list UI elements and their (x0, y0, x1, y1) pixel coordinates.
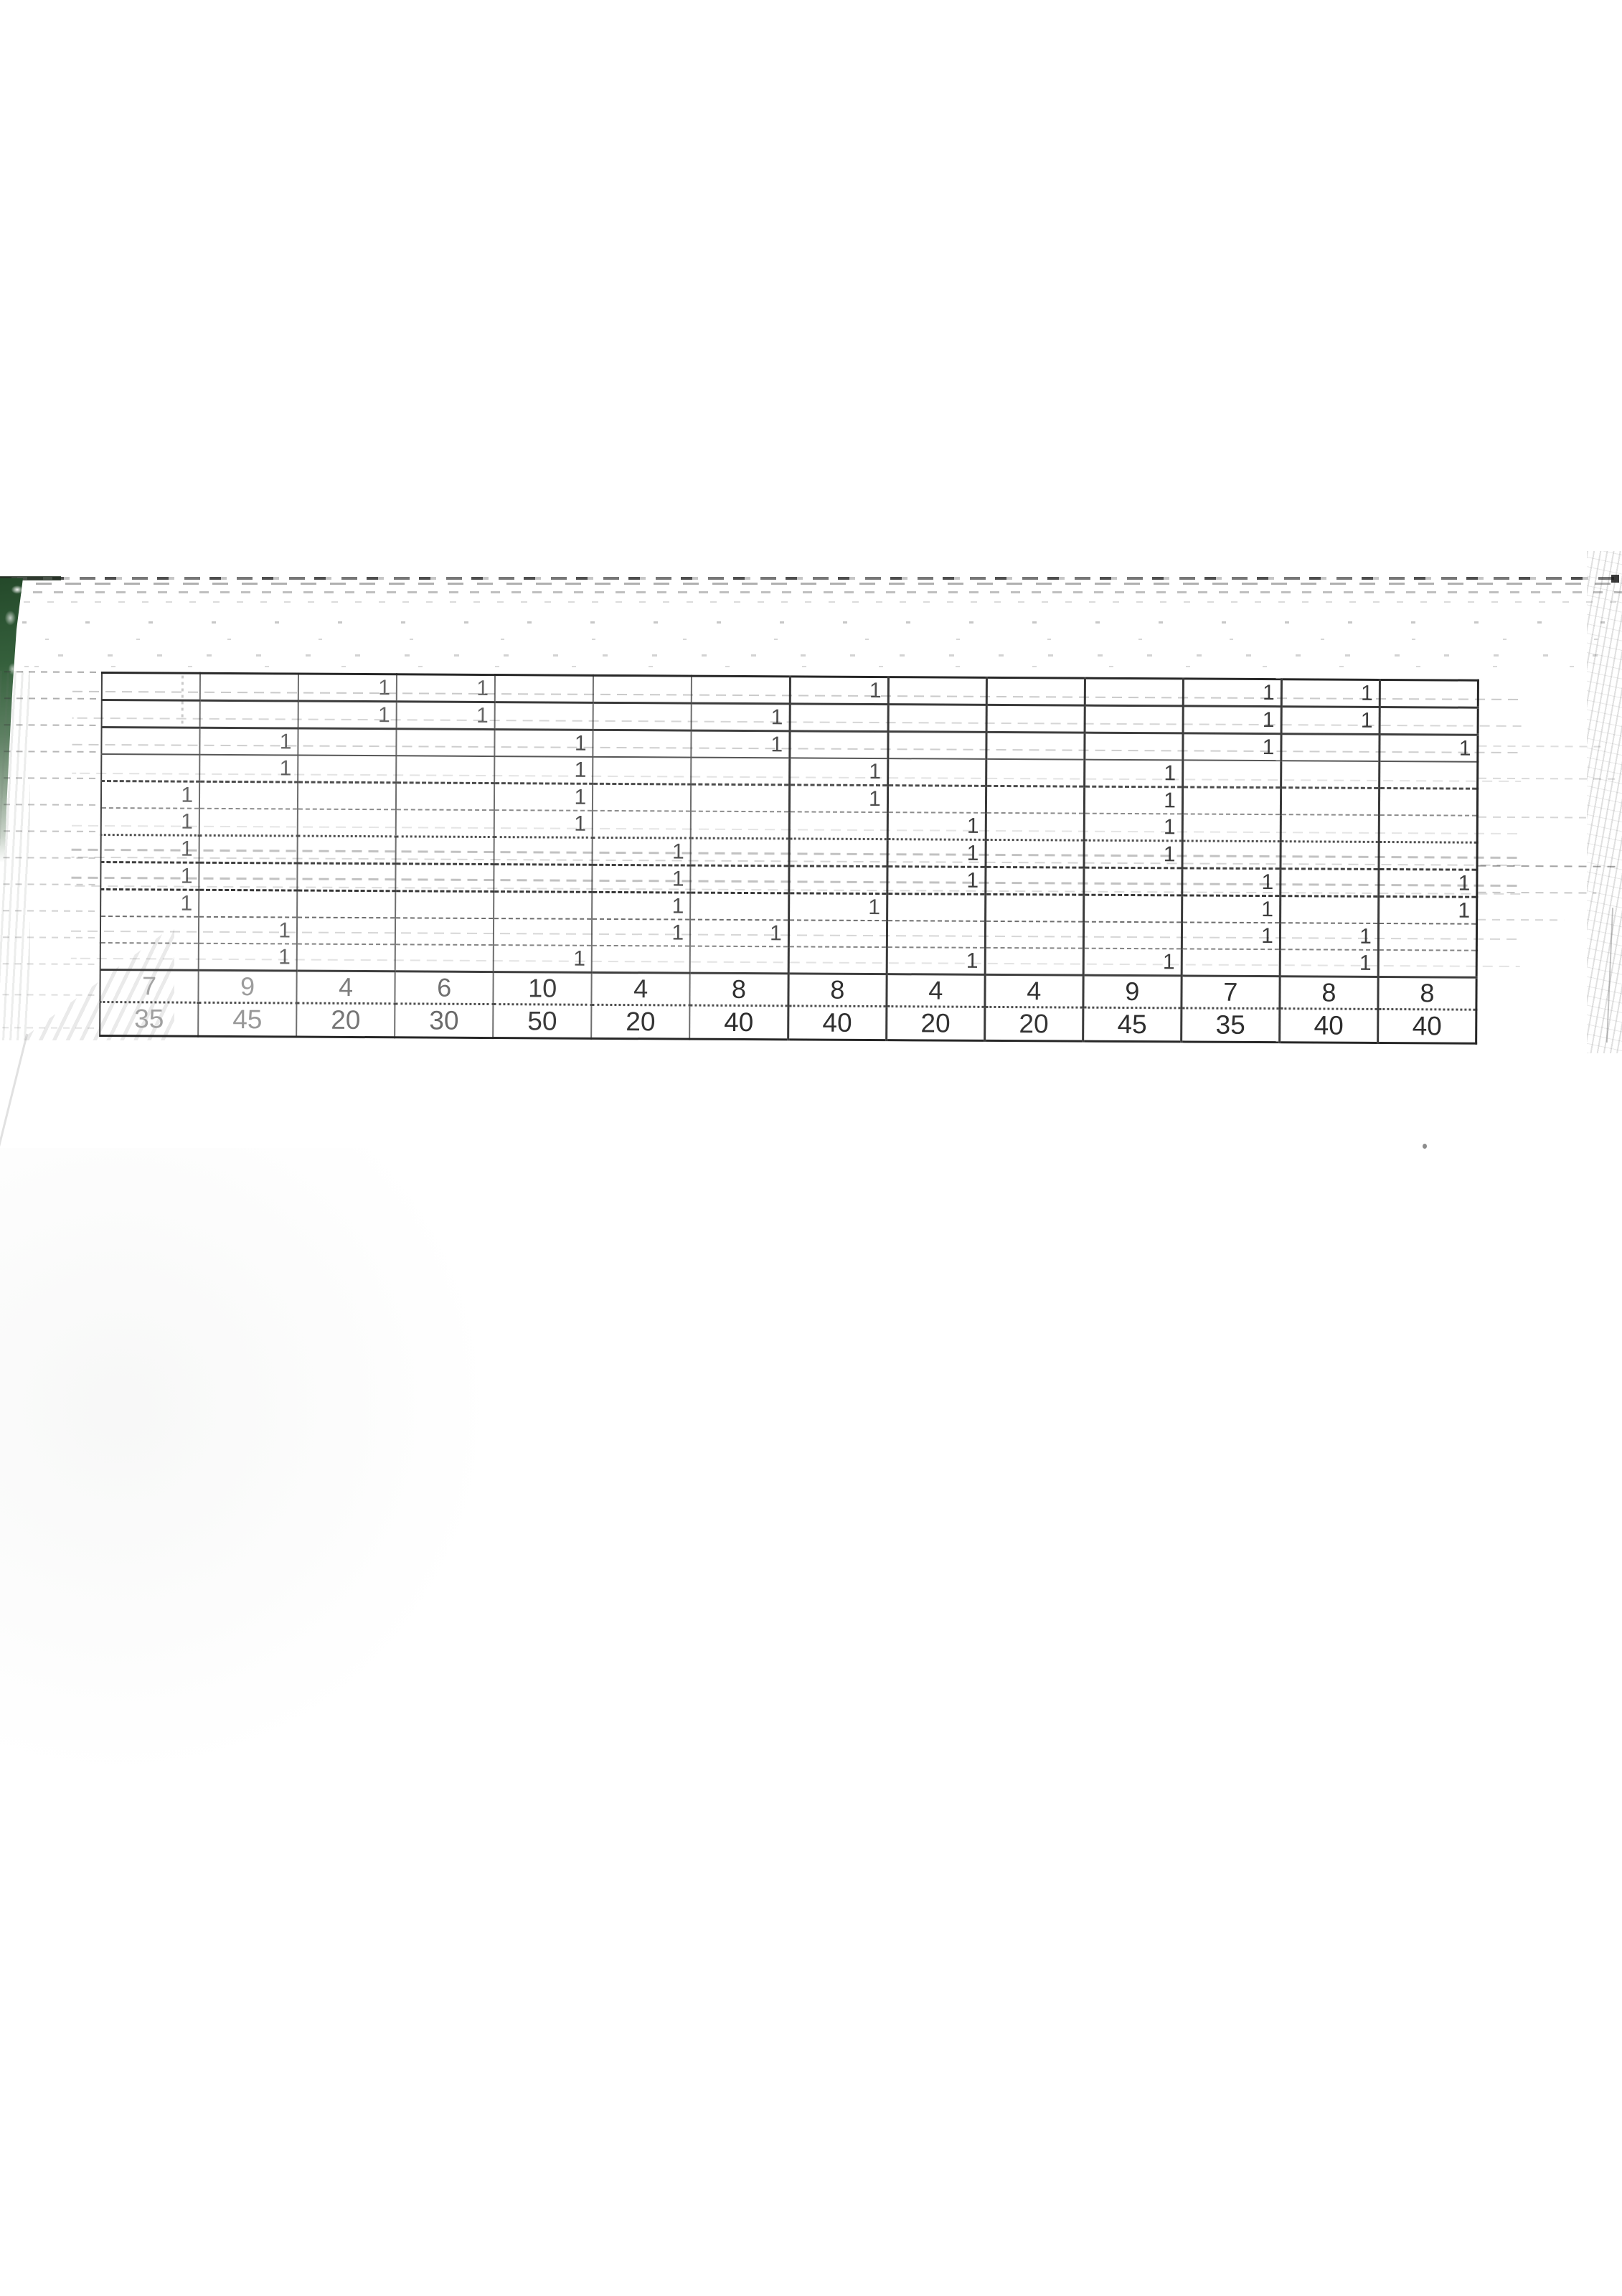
grid-cell (200, 673, 298, 701)
row-line-extensions (2, 671, 101, 1034)
grid-cell (1083, 895, 1182, 922)
grid-cell (1182, 787, 1281, 814)
grid-cell (1280, 896, 1378, 923)
grid-cell-mark: 1 (397, 702, 495, 730)
count-cell-mark: 8 (788, 974, 887, 1007)
grid-cell-mark: 1 (887, 947, 985, 974)
row-line-extension (2, 1027, 99, 1029)
grid-cell (593, 784, 691, 811)
grid-cell-mark: 1 (494, 784, 593, 811)
grid-cell-mark: 1 (101, 781, 199, 809)
grid-cell (593, 675, 692, 703)
grid-cell-mark: 1 (199, 917, 297, 944)
grid-cell (395, 918, 494, 945)
grid-cell (986, 759, 1084, 786)
faded-digit-ghost (181, 676, 184, 728)
row-line-extension (2, 994, 99, 996)
grid-cell-mark: 1 (1182, 922, 1280, 949)
row-line-extension (4, 697, 101, 700)
grid-cell (1281, 761, 1379, 788)
count-cell-mark: 10 (494, 972, 592, 1005)
count-cell-mark: 6 (395, 971, 494, 1004)
scan-edge-noise (1587, 551, 1622, 1053)
grid-cell (985, 948, 1083, 975)
grid-cell (593, 757, 691, 784)
grid-cell-mark: 1 (1378, 896, 1476, 923)
grid-cell (199, 809, 298, 836)
row-line-extension (3, 910, 100, 912)
grid-cell (396, 729, 494, 756)
count-cell-mark: 9 (1083, 975, 1182, 1008)
grid-cell (495, 675, 593, 703)
row-line-extension (1478, 919, 1564, 921)
row-line-extension (1479, 745, 1600, 748)
row-line-extension (1479, 778, 1615, 780)
grid-cell (1380, 761, 1478, 789)
grid-cell-mark: 1 (1083, 949, 1182, 976)
grid-cell (887, 786, 986, 813)
grid-cell-mark: 1 (298, 674, 397, 702)
scan-noise-dots (0, 654, 1622, 657)
grid-cell (986, 813, 1084, 840)
grid-cell (1085, 733, 1183, 760)
grid-cell (593, 811, 691, 838)
ink-speck (1423, 1144, 1427, 1149)
grid-cell (395, 891, 494, 918)
grid-cell (888, 732, 986, 759)
count-cell-mark: 4 (985, 974, 1083, 1007)
grid-cell (494, 918, 592, 946)
scanned-page: 1111111111111111111111111111111111111111… (0, 0, 1622, 2296)
grid-cell (691, 758, 789, 785)
grid-cell-mark: 1 (199, 944, 297, 971)
grid-cell (790, 731, 888, 758)
grid-cell (1380, 707, 1478, 735)
count-cell-mark: 8 (1280, 977, 1378, 1010)
grid-cell (690, 893, 788, 920)
count-cell-mark: 8 (690, 973, 788, 1006)
grid-cell (100, 943, 199, 970)
grid-cell-mark: 1 (494, 810, 593, 837)
points-cell-mark: 30 (395, 1004, 493, 1038)
grid-cell-mark: 1 (199, 728, 298, 755)
scan-noise-band (0, 577, 1622, 580)
grid-cell (199, 781, 298, 809)
grid-cell (887, 758, 986, 786)
grid-cell-mark: 1 (790, 677, 888, 705)
points-cell-mark: 45 (198, 1002, 296, 1037)
grid-cell (788, 946, 887, 974)
grid-cell-mark: 1 (494, 945, 592, 972)
points-cell-mark: 35 (1181, 1008, 1279, 1043)
grid-cell-mark: 1 (1280, 923, 1378, 950)
scan-noise-band (0, 583, 1622, 585)
count-cell-mark: 7 (1182, 976, 1280, 1009)
grid-cell (1281, 788, 1379, 815)
grid-cell (102, 700, 200, 728)
grid-cell (1085, 705, 1183, 733)
grid-cell (1083, 922, 1182, 949)
row-line-extension (4, 724, 101, 726)
grid-cell-mark: 1 (1183, 706, 1281, 734)
grid-cell-mark: 1 (397, 674, 495, 702)
points-cell-mark: 20 (296, 1003, 395, 1038)
grid-cell (298, 756, 396, 783)
grid-cell (888, 705, 986, 733)
grid-cell-mark: 1 (298, 701, 397, 729)
grid-cell (1379, 788, 1477, 815)
grid-cell-mark: 1 (1183, 733, 1281, 761)
grid-cell-mark: 1 (1280, 949, 1378, 977)
grid-cell (888, 677, 986, 705)
row-line-extension (4, 751, 100, 753)
grid-cell (395, 944, 494, 971)
row-line-extension (4, 777, 100, 779)
grid-cell-mark: 1 (1281, 707, 1380, 735)
grid-cell (1378, 923, 1476, 951)
grid-cell-mark: 1 (789, 785, 887, 812)
scan-noise-band (0, 601, 1622, 603)
grid-cell (396, 783, 494, 810)
grid-cell (298, 809, 396, 837)
grid-cell (592, 946, 690, 973)
grid-cell (494, 892, 592, 919)
points-cell-mark: 20 (886, 1007, 984, 1041)
grid-cell-mark: 1 (494, 756, 593, 784)
count-cell-mark: 8 (1378, 977, 1476, 1010)
count-cell-mark: 7 (100, 969, 198, 1002)
points-cell-mark: 40 (689, 1005, 788, 1040)
grid-cell (297, 890, 395, 918)
scan-noise-dots (0, 639, 1622, 640)
grid-cell (790, 704, 888, 732)
grid-cell (986, 705, 1085, 733)
grid-cell (690, 946, 788, 974)
grid-cell (495, 702, 593, 730)
row-line-extension (4, 671, 101, 673)
grid-cell (1182, 814, 1281, 841)
grid-cell-mark: 1 (887, 812, 986, 839)
count-cell-mark: 9 (198, 970, 296, 1003)
row-line-extension (3, 936, 100, 938)
grid-cell-mark: 1 (1182, 895, 1280, 923)
grid-cell (691, 784, 789, 811)
grid-cell-mark: 1 (1084, 814, 1182, 841)
tally-table-wrap: 1111111111111111111111111111111111111111… (99, 672, 1479, 1045)
grid-cell (1378, 950, 1476, 977)
row-line-extension (4, 830, 100, 832)
scan-noise-band (0, 591, 1622, 593)
grid-cell (298, 728, 396, 756)
grid-cell-mark: 1 (494, 730, 593, 757)
row-line-extension (1479, 817, 1586, 819)
grid-cell-mark: 1 (100, 890, 199, 917)
points-cell-mark: 35 (100, 1002, 198, 1036)
grid-cell (298, 782, 396, 809)
points-cell-mark: 40 (1280, 1009, 1378, 1043)
count-cell-mark: 4 (887, 974, 985, 1007)
grid-cell-mark: 1 (1084, 760, 1182, 787)
grid-cell (985, 921, 1083, 949)
grid-cell-mark: 1 (1084, 786, 1182, 814)
row-line-extension (3, 963, 100, 965)
grid-cell (396, 756, 494, 783)
grid-cell (593, 702, 692, 730)
grid-cell (887, 921, 985, 948)
grid-cell-mark: 1 (1380, 734, 1478, 761)
points-cell-mark: 40 (788, 1006, 886, 1040)
grid-cell (789, 811, 887, 839)
grid-cell (200, 700, 298, 728)
grid-cell-mark: 1 (789, 758, 887, 785)
grid-cell-mark: 1 (1183, 679, 1281, 707)
scan-noise-dots (0, 666, 1622, 667)
points-cell-mark: 20 (591, 1004, 689, 1039)
row-line-extension (4, 804, 100, 806)
grid-cell-mark: 1 (592, 892, 690, 919)
grid-cell (100, 916, 199, 944)
grid-cell (1281, 734, 1380, 761)
grid-cell (986, 786, 1084, 813)
grid-cell (692, 676, 790, 704)
grid-cell (199, 890, 297, 917)
grid-cell (101, 754, 199, 781)
grid-cell-mark: 1 (101, 808, 199, 835)
grid-cell (297, 918, 395, 945)
grid-cell-mark: 1 (1281, 679, 1380, 707)
scan-noise-dots (0, 621, 1622, 624)
grid-cell-mark: 1 (592, 919, 690, 946)
grid-cell (396, 809, 494, 837)
grid-cell-mark: 1 (690, 920, 788, 947)
points-cell-mark: 45 (1083, 1007, 1181, 1042)
grid-cell (1281, 814, 1379, 842)
grid-cell (1379, 815, 1477, 842)
grid-cell (102, 673, 200, 701)
grid-cell (887, 894, 985, 921)
grid-cell-mark: 1 (692, 703, 790, 731)
grid-cell (101, 728, 199, 755)
grid-cell (691, 811, 789, 839)
points-cell-mark: 50 (493, 1004, 591, 1039)
count-cell-mark: 4 (296, 971, 395, 1004)
grid-cell (593, 730, 692, 757)
grid-cell (1380, 679, 1478, 707)
paper-shading (0, 1148, 545, 1830)
grid-cell (1182, 949, 1280, 976)
points-cell-mark: 20 (984, 1007, 1083, 1041)
grid-cell-mark: 1 (692, 730, 790, 758)
grid-cell (986, 732, 1085, 759)
grid-cell (985, 894, 1083, 921)
count-cell-mark: 4 (592, 972, 690, 1005)
grid-cell-mark: 1 (788, 893, 887, 921)
points-row: 3545203050204040202045354040 (100, 1002, 1476, 1043)
grid-cell (1182, 760, 1281, 787)
grid-cell (297, 944, 395, 971)
grid-cell-mark: 1 (199, 755, 298, 782)
grid-cell (788, 920, 887, 947)
grid-cell (1085, 678, 1183, 706)
points-cell-mark: 40 (1378, 1009, 1476, 1043)
grid-cell (986, 677, 1085, 705)
